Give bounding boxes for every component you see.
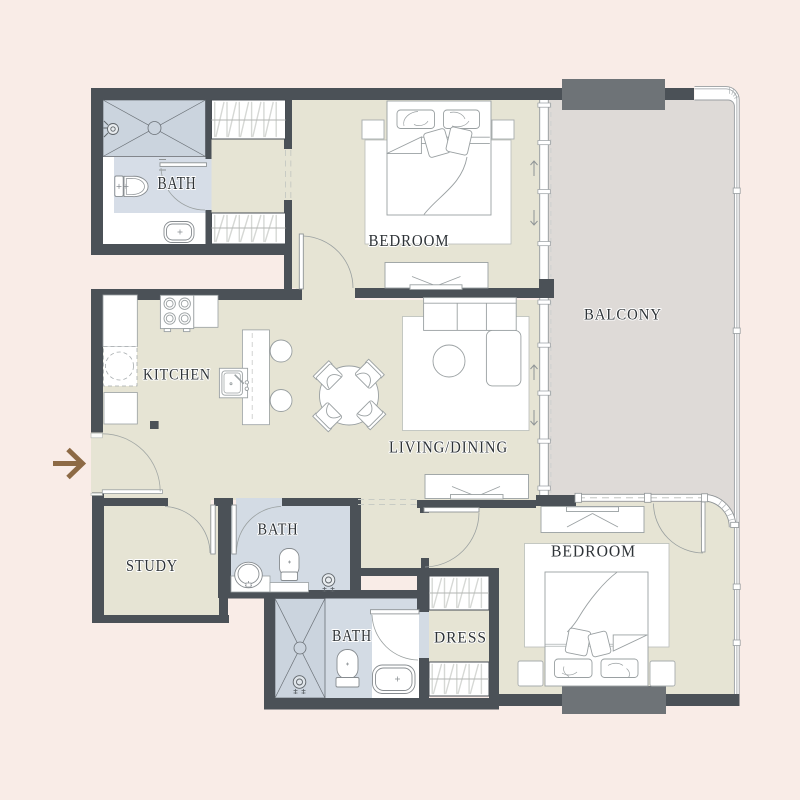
- svg-text:STUDY: STUDY: [126, 556, 178, 575]
- svg-text:BEDROOM: BEDROOM: [551, 542, 636, 561]
- svg-text:KITCHEN: KITCHEN: [143, 367, 211, 384]
- svg-text:BATH: BATH: [258, 520, 299, 539]
- svg-text:BEDROOM: BEDROOM: [369, 231, 450, 250]
- svg-text:BATH: BATH: [158, 173, 197, 193]
- svg-text:BATH: BATH: [332, 626, 372, 645]
- svg-text:BALCONY: BALCONY: [584, 307, 662, 324]
- svg-text:DRESS: DRESS: [434, 630, 487, 647]
- svg-text:LIVING/DINING: LIVING/DINING: [389, 438, 508, 457]
